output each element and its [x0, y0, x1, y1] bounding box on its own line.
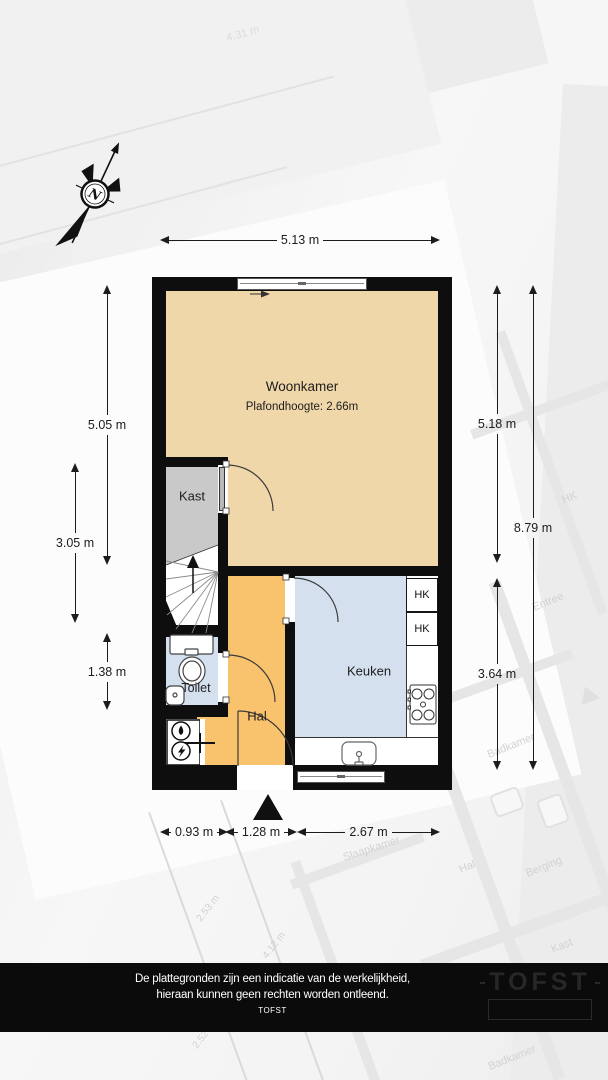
- room-label-keuken: Keuken: [347, 664, 391, 679]
- dimension-left-mid: 3.05 m: [50, 463, 100, 623]
- dimension-label: 3.64 m: [478, 664, 516, 684]
- logo-dash: [480, 982, 485, 984]
- background-label: 4.12 m: [261, 930, 288, 961]
- room-label-kast: Kast: [179, 489, 205, 504]
- disclaimer-line-3: TOFST: [0, 1006, 545, 1015]
- dimension-bottom-left: 0.93 m: [160, 824, 225, 840]
- floorplan-page: { "compass": { "label": "N" }, "plan": {…: [0, 0, 608, 1080]
- stairs-arrow-head-icon: [187, 555, 199, 568]
- sink-icon: [342, 742, 376, 765]
- logo-text: TOFST: [489, 968, 590, 997]
- door-hinges: [223, 461, 289, 703]
- room-label-toilet: Toilet: [181, 681, 210, 695]
- ceiling-height-note: Plafondhoogte: 2.66m: [246, 401, 359, 413]
- disclaimer-line-2: hieraan kunnen geen rechten worden ontle…: [0, 987, 545, 1003]
- background-wall: [290, 832, 425, 889]
- dimension-right-lower: 3.64 m: [472, 578, 522, 770]
- dimension-label: 5.13 m: [277, 233, 323, 247]
- dimension-top: 5.13 m: [160, 233, 440, 247]
- dimension-label: 5.05 m: [88, 415, 126, 435]
- dimension-label: 1.38 m: [88, 662, 126, 682]
- dimension-label: 2.67 m: [345, 825, 391, 839]
- background-label: 2.53 m: [195, 893, 222, 924]
- stove-icon: [408, 685, 436, 724]
- door-arc-kast: [227, 465, 273, 511]
- room-name: Woonkamer: [246, 379, 359, 394]
- dimension-label: 0.93 m: [171, 825, 217, 839]
- room-label-hal: Hal: [247, 709, 267, 724]
- window-vent-arrow: [250, 291, 270, 298]
- dimension-bottom-right: 2.67 m: [297, 824, 440, 840]
- dimension-label: 3.05 m: [56, 533, 94, 553]
- plan-fixtures: [152, 277, 455, 790]
- disclaimer-text: De plattegronden zijn een indicatie van …: [0, 971, 545, 1015]
- dimension-left-lower: 1.38 m: [82, 633, 132, 710]
- dimension-label: 1.28 m: [238, 825, 284, 839]
- utility-meters: [167, 719, 215, 765]
- entrance-marker-icon: [253, 794, 283, 820]
- dimension-label: 8.79 m: [514, 518, 552, 538]
- compass-north-icon: N: [50, 136, 140, 264]
- logo-tagline-box: [488, 999, 592, 1020]
- logo-dash: [595, 982, 600, 984]
- dimension-bottom-mid: 1.28 m: [225, 824, 297, 840]
- door-arc-toilet: [228, 655, 275, 702]
- footer-disclaimer-bar: De plattegronden zijn een indicatie van …: [0, 963, 608, 1032]
- tofst-logo: TOFST: [480, 968, 600, 1020]
- door-arc-keuken: [294, 578, 338, 622]
- toilet-icon: [170, 635, 213, 685]
- room-label-woonkamer: Woonkamer Plafondhoogte: 2.66m: [246, 379, 359, 413]
- disclaimer-line-1: De plattegronden zijn een indicatie van …: [0, 971, 545, 987]
